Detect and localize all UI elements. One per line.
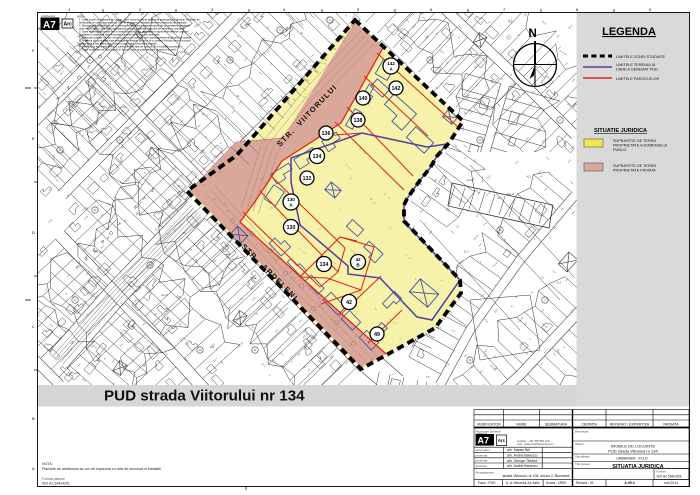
svg-text:Obiect :: Obiect : <box>575 442 586 446</box>
svg-text:21.4: 21.4 <box>510 85 515 88</box>
svg-text:15: 15 <box>228 58 232 62</box>
svg-text:SITUATIE JURIDICA: SITUATIE JURIDICA <box>594 128 647 134</box>
svg-text:40.1: 40.1 <box>526 175 531 178</box>
svg-text:140: 140 <box>359 96 368 102</box>
svg-text:A7: A7 <box>478 436 490 446</box>
svg-text:NOTA:: NOTA: <box>42 462 53 466</box>
svg-text:7. Orice modificare se face nu: 7. Orice modificare se face numai cu aco… <box>79 48 177 52</box>
svg-text:arh. Andrei Banescu: arh. Andrei Banescu <box>507 454 538 458</box>
svg-text:Arc: Arc <box>64 22 73 28</box>
svg-text:mai 2014: mai 2014 <box>664 481 678 485</box>
svg-text:40: 40 <box>498 228 502 232</box>
svg-text:NR/DATA: NR/DATA <box>663 422 679 426</box>
svg-text:17: 17 <box>73 298 77 302</box>
svg-text:PROPRIETATE PRIVATA: PROPRIETATE PRIVATA <box>613 169 656 173</box>
svg-text:VERIFICATOR: VERIFICATOR <box>477 422 501 426</box>
svg-text:42: 42 <box>346 300 352 306</box>
svg-text:a7arhitectura: a7arhitectura <box>476 432 489 435</box>
svg-text:A: A <box>32 466 35 471</box>
svg-text:REFERAT / EXPERTIZA: REFERAT / EXPERTIZA <box>610 422 650 426</box>
svg-text:web : www.a7arhitectura.com: web : www.a7arhitectura.com <box>517 442 554 446</box>
svg-text:134: 134 <box>320 262 329 268</box>
svg-text:desenat: desenat <box>476 464 487 468</box>
svg-text:arh. Andrei Banescu: arh. Andrei Banescu <box>507 464 538 468</box>
svg-text:Titlu plansei: Titlu plansei <box>575 462 590 466</box>
svg-text:Arc: Arc <box>498 438 506 443</box>
svg-text:31: 31 <box>253 348 257 352</box>
svg-text:LIMITELE PARCELELOR: LIMITELE PARCELELOR <box>616 77 659 81</box>
svg-text:CARE A GENERAT PUD: CARE A GENERAT PUD <box>616 68 658 72</box>
svg-text:Beneficiar :: Beneficiar : <box>575 430 590 434</box>
svg-text:Revizia : 01: Revizia : 01 <box>576 481 594 485</box>
svg-text:sef proiect: sef proiect <box>476 448 490 452</box>
svg-text:Scara : 1/500: Scara : 1/500 <box>546 481 566 485</box>
svg-text:Amplasament :: Amplasament : <box>476 471 496 475</box>
svg-text:URBANISM - P.U.D: URBANISM - P.U.D <box>616 457 648 461</box>
svg-text:136: 136 <box>322 131 331 137</box>
svg-text:LIMITELE TERENULUI: LIMITELE TERENULUI <box>616 63 655 67</box>
svg-text:strada Viitorului, nr 134, sec: strada Viitorului, nr 134, sector 2, Buc… <box>503 474 570 478</box>
svg-text:A7: A7 <box>43 20 56 31</box>
svg-text:a7arhitectura: a7arhitectura <box>41 15 56 18</box>
svg-text:CERINTA: CERINTA <box>581 422 597 426</box>
svg-text:Faza : PUD: Faza : PUD <box>478 481 496 485</box>
svg-text:D: D <box>32 230 35 235</box>
svg-text:21.4: 21.4 <box>556 281 561 284</box>
svg-text:proiectat: proiectat <box>476 459 488 463</box>
svg-text:12: 12 <box>93 208 97 212</box>
svg-text:E: E <box>32 136 35 141</box>
svg-text:19: 19 <box>198 348 202 352</box>
svg-text:21.4: 21.4 <box>464 251 469 254</box>
svg-text:24: 24 <box>148 263 152 267</box>
svg-text:4.21: 4.21 <box>121 106 126 109</box>
svg-text:130: 130 <box>287 225 296 231</box>
svg-text:arh. George Tibulea: arh. George Tibulea <box>507 459 537 463</box>
svg-text:LEGENDA: LEGENDA <box>602 26 656 38</box>
svg-text:B: B <box>32 416 35 421</box>
svg-text:Plansele de arhitectura se vor: Plansele de arhitectura se vor citi impr… <box>42 467 162 471</box>
svg-text:142: 142 <box>387 61 395 66</box>
svg-text:142: 142 <box>392 86 401 92</box>
svg-text:proiectat: proiectat <box>476 453 488 457</box>
svg-text:PUD strada Viitorului nr 134: PUD strada Viitorului nr 134 <box>104 388 305 405</box>
svg-text:Format :: Format : <box>657 470 668 474</box>
svg-text:PROPRIETATE A DOMENIULUI: PROPRIETATE A DOMENIULUI <box>613 144 667 148</box>
svg-text:134: 134 <box>313 154 322 160</box>
svg-text:SUPRAFETE DE TEREN: SUPRAFETE DE TEREN <box>613 164 656 168</box>
svg-text:PUD strada Viitorului nr 134: PUD strada Viitorului nr 134 <box>608 449 658 454</box>
svg-text:138: 138 <box>354 118 363 124</box>
svg-text:11.2: 11.2 <box>508 20 513 23</box>
svg-text:Specialitate: Specialitate <box>575 455 590 459</box>
svg-text:arh. Marian Bel: arh. Marian Bel <box>507 448 530 452</box>
svg-text:42: 42 <box>355 257 361 262</box>
svg-text:22: 22 <box>478 138 482 142</box>
svg-text:130: 130 <box>287 197 295 202</box>
svg-text:132: 132 <box>303 176 312 182</box>
svg-text:+41.22: +41.22 <box>161 294 169 297</box>
svg-text:SEMNATURA: SEMNATURA <box>545 422 568 426</box>
svg-text:A :A-Viitorului-2d-3a6c: A :A-Viitorului-2d-3a6c <box>506 481 540 485</box>
svg-text:11: 11 <box>468 358 471 362</box>
svg-text:N: N <box>529 28 537 40</box>
svg-text:SUPRAFETE DE TEREN: SUPRAFETE DE TEREN <box>613 139 656 143</box>
svg-text:C: C <box>32 324 35 329</box>
svg-text:49: 49 <box>374 332 380 338</box>
svg-text:A-99.0: A-99.0 <box>624 481 634 485</box>
svg-text:40.1: 40.1 <box>177 185 182 188</box>
svg-text:PUBLIC: PUBLIC <box>613 148 627 152</box>
svg-text:LIMITELE ZONEI STUDIATE: LIMITELE ZONEI STUDIATE <box>616 55 666 59</box>
svg-text:ISO A2 594x420L: ISO A2 594x420L <box>42 482 70 486</box>
svg-text:ISO A2 594x420L: ISO A2 594x420L <box>657 475 683 479</box>
svg-text:+41.22: +41.22 <box>94 250 102 253</box>
svg-text:NUME: NUME <box>516 422 527 426</box>
svg-text:40.1: 40.1 <box>497 197 502 200</box>
svg-text:14: 14 <box>428 58 432 62</box>
svg-text:Format plansei:: Format plansei: <box>42 477 65 481</box>
